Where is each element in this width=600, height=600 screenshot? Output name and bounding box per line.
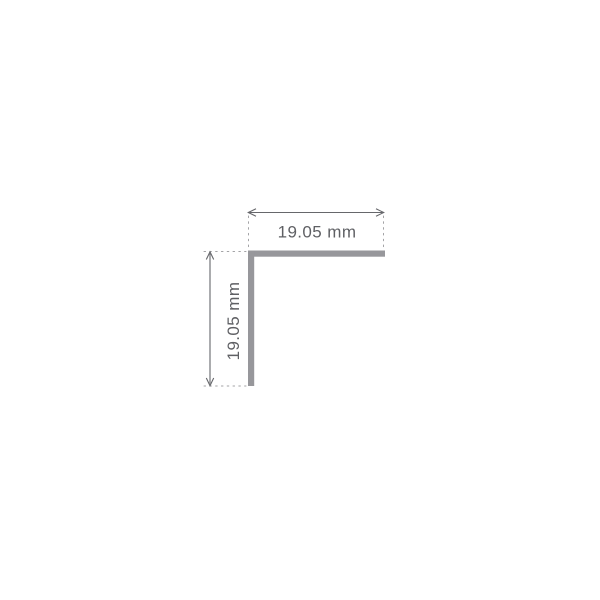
profile-vertical-leg bbox=[248, 251, 254, 387]
horizontal-dimension-label: 19.05 mm bbox=[278, 223, 357, 242]
dimension-diagram-canvas: 19.05 mm 19.05 mm bbox=[0, 0, 600, 600]
vertical-dimension-label: 19.05 mm bbox=[224, 282, 243, 361]
diagram-background bbox=[0, 0, 600, 600]
dimension-diagram: 19.05 mm 19.05 mm bbox=[0, 0, 600, 600]
profile-horizontal-leg bbox=[248, 251, 385, 257]
